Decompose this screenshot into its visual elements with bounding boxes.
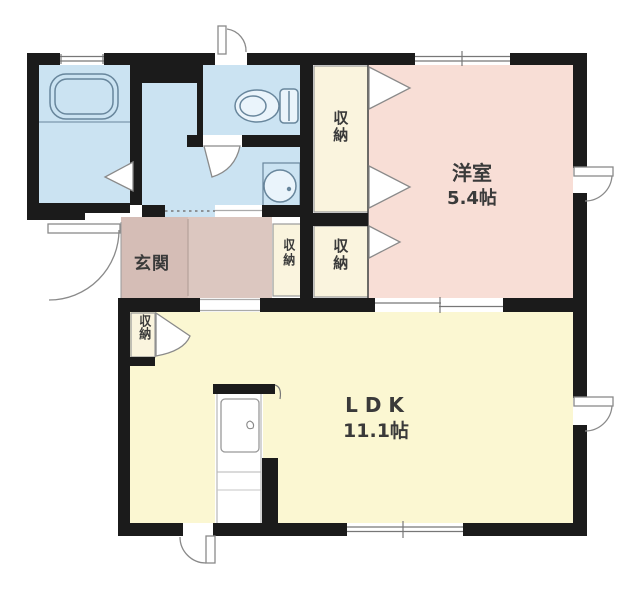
floorplan-drawing bbox=[0, 0, 640, 597]
western-room-size: 5.4帖 bbox=[432, 189, 512, 210]
bathroom-window bbox=[60, 53, 104, 65]
entrance-door bbox=[48, 224, 120, 300]
washroom-hall-opening bbox=[215, 205, 262, 217]
storage-hall-label: 収納 bbox=[280, 238, 294, 294]
floorplan-canvas: 洋室 5.4帖 LDK 11.1帖 玄関 収納 収納 収納 収納 bbox=[0, 0, 640, 597]
storage-ldk-label: 収納 bbox=[136, 314, 150, 356]
washroom-floor bbox=[142, 83, 203, 217]
service-exterior-door bbox=[180, 536, 215, 563]
ldk-floor bbox=[130, 312, 573, 523]
ldk-label: LDK bbox=[326, 394, 430, 417]
ldk-bottom-window bbox=[347, 521, 463, 538]
western-room-label: 洋室 bbox=[432, 162, 512, 185]
hall-floor bbox=[188, 217, 272, 298]
entrance-label: 玄関 bbox=[134, 255, 170, 275]
storage-lower-label: 収納 bbox=[331, 238, 348, 296]
toilet-exterior-door bbox=[218, 26, 246, 54]
door-icon bbox=[221, 399, 259, 452]
toilet-icon bbox=[235, 89, 298, 123]
storage-upper-label: 収納 bbox=[331, 110, 348, 172]
ldk-size: 11.1帖 bbox=[326, 421, 426, 443]
sliding-door-western-ldk bbox=[375, 297, 503, 313]
hall-ldk-opening bbox=[200, 298, 260, 312]
western-room-window bbox=[415, 51, 510, 66]
